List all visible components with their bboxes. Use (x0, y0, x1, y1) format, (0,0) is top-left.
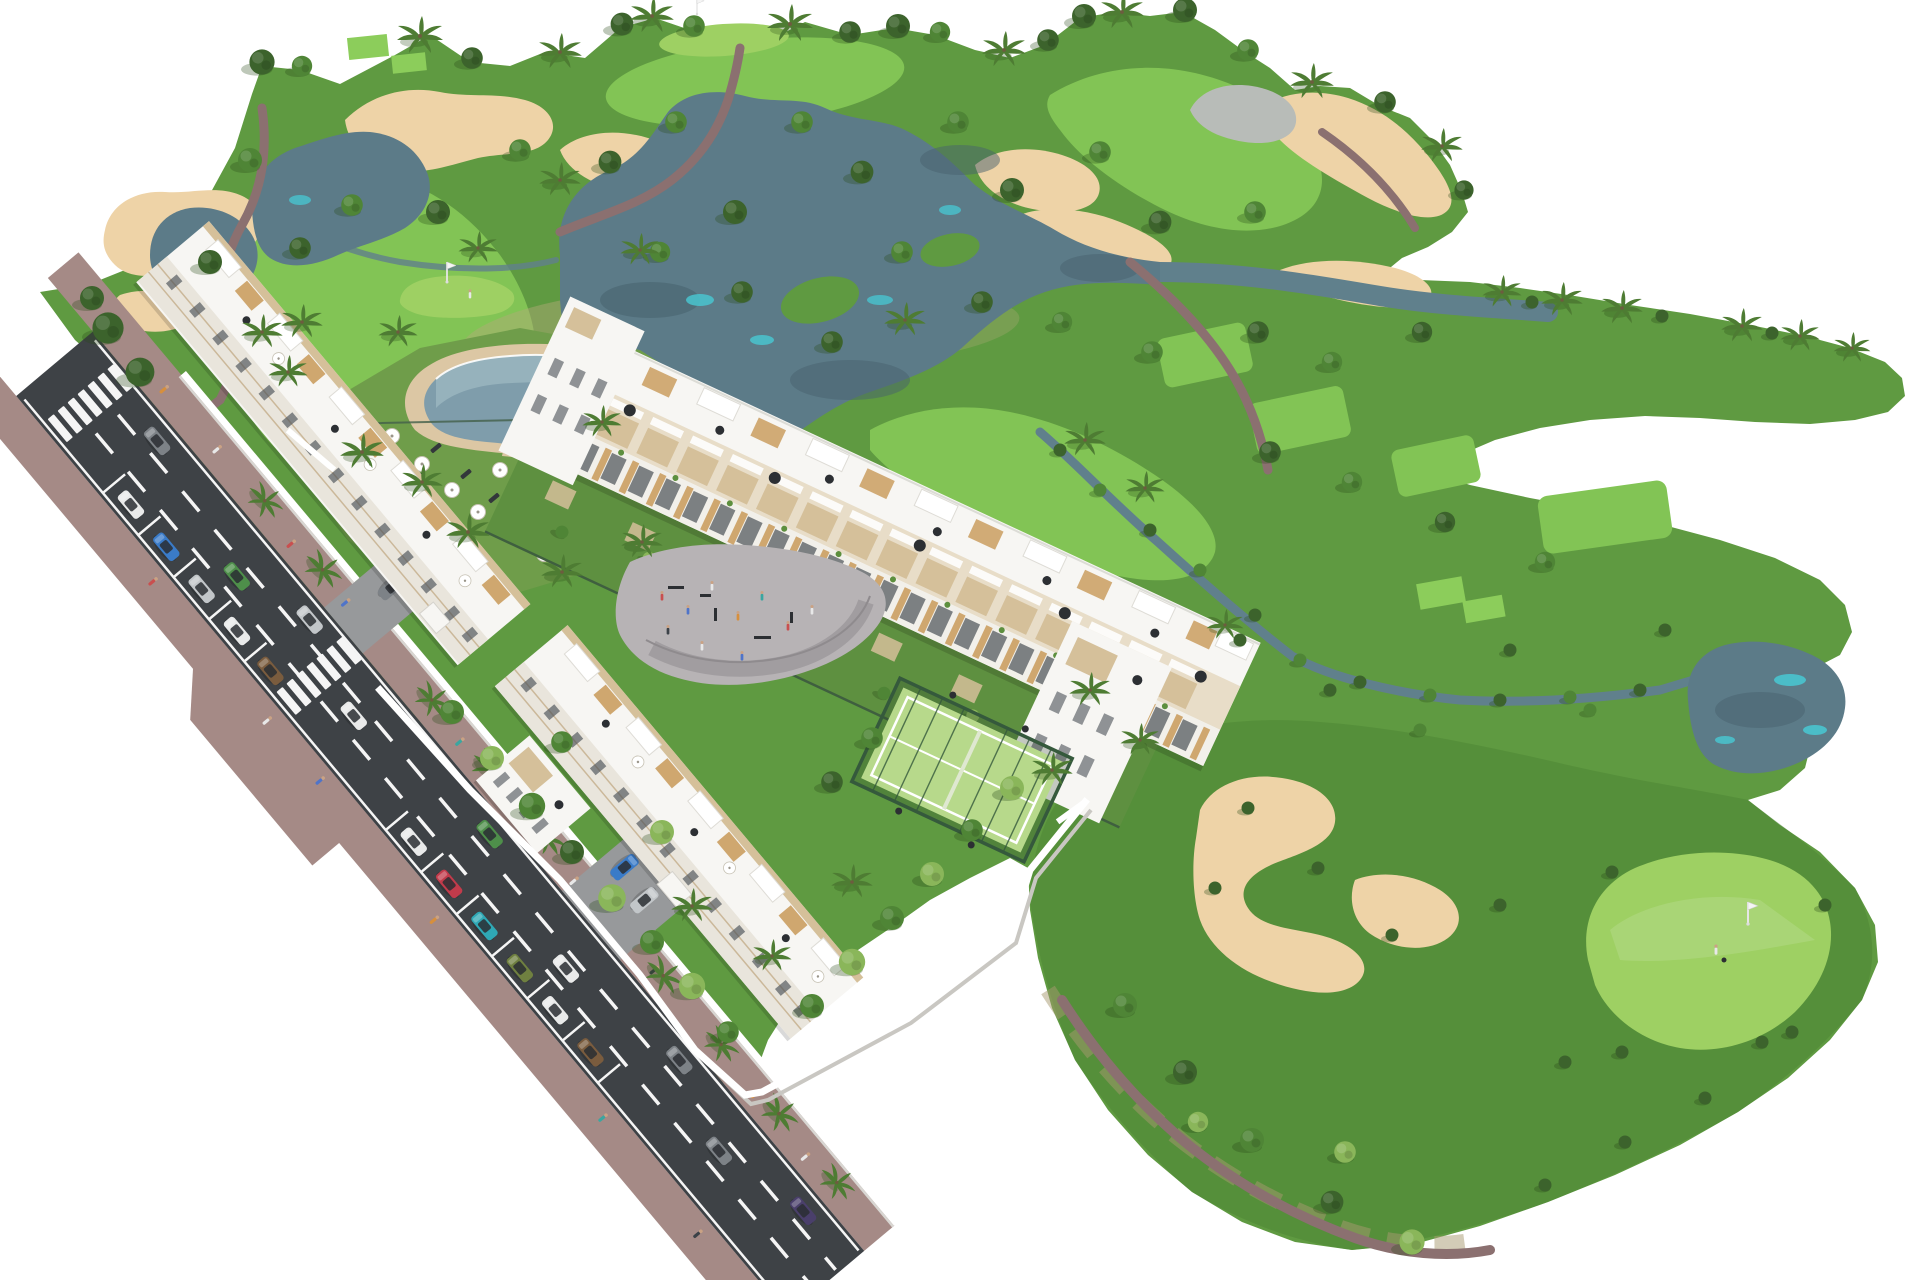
golfer (469, 289, 472, 298)
flag-pin (696, 0, 704, 15)
render-canvas (0, 0, 1920, 1280)
golfer (1714, 945, 1717, 955)
masterplan-render (0, 0, 1920, 1280)
